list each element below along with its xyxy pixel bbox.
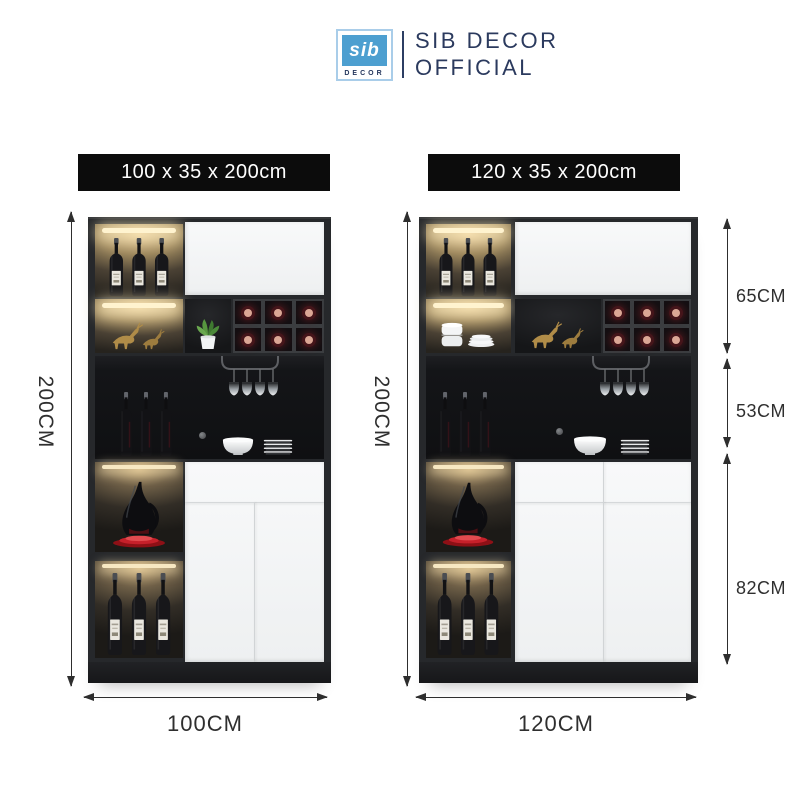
wine-cap-rack bbox=[603, 299, 691, 353]
lower-door-panel bbox=[515, 462, 691, 662]
wine-rack-cell bbox=[664, 328, 689, 351]
logo-wordmark: DECOR bbox=[338, 70, 391, 77]
section-dimension-line-65cm bbox=[727, 219, 728, 353]
wine-rack-cell bbox=[634, 301, 659, 324]
door-divider bbox=[603, 462, 604, 662]
serving-bowl bbox=[572, 436, 608, 456]
logo-monogram: sib bbox=[342, 35, 387, 66]
section-dimension-line-82cm bbox=[727, 454, 728, 664]
decanter bbox=[432, 478, 504, 550]
wine-rack-cell bbox=[296, 328, 322, 351]
wine-rack-cell bbox=[296, 301, 322, 324]
product-image: sib DECOR SIB DECOR OFFICIAL 100 x 35 x … bbox=[0, 0, 800, 800]
wine-rack-cell bbox=[265, 301, 291, 324]
lower-bottle-compartment bbox=[95, 561, 183, 658]
plant-pot bbox=[193, 317, 223, 351]
compartment-wine-display bbox=[426, 224, 511, 297]
brand-name-line1: SIB DECOR bbox=[415, 27, 559, 54]
section-dimension-label-82cm: 82CM bbox=[736, 578, 790, 599]
lower-bottle-compartment bbox=[426, 561, 511, 658]
brand-logo: sib DECOR bbox=[336, 29, 393, 81]
height-dimension-line-120 bbox=[407, 212, 408, 686]
deer-compartment bbox=[95, 299, 183, 353]
wine-rack-cell bbox=[605, 301, 630, 324]
wine-glass-rack bbox=[213, 356, 287, 410]
wine-bottles bbox=[117, 392, 175, 456]
deer-figurine bbox=[523, 320, 593, 350]
decanter-compartment bbox=[426, 462, 511, 552]
wine-cap-rack bbox=[233, 299, 324, 353]
plant-compartment bbox=[185, 299, 231, 353]
dish-stack bbox=[436, 319, 500, 351]
wine-glass-rack bbox=[584, 356, 658, 410]
wine-rack-cell bbox=[265, 328, 291, 351]
brand-name-line2: OFFICIAL bbox=[415, 54, 559, 81]
wine-rack-cell bbox=[235, 301, 261, 324]
shelf-knob bbox=[556, 428, 563, 435]
wine-bottles bbox=[104, 573, 174, 655]
shelf-knob bbox=[199, 432, 206, 439]
size-banner-120: 120 x 35 x 200cm bbox=[428, 154, 680, 191]
decanter-compartment bbox=[95, 462, 183, 552]
width-dimension-label-120: 120CM bbox=[486, 711, 626, 737]
cabinet-base bbox=[88, 662, 331, 683]
section-dimension-label-53cm: 53CM bbox=[736, 401, 790, 422]
width-dimension-line-120 bbox=[416, 697, 696, 698]
deer-figurine bbox=[103, 321, 175, 351]
door-divider bbox=[254, 502, 255, 662]
wine-rack-cell bbox=[664, 301, 689, 324]
plate-stack bbox=[261, 437, 295, 456]
section-dimension-label-65cm: 65CM bbox=[736, 286, 790, 307]
wine-rack-cell bbox=[634, 328, 659, 351]
open-shelf-section bbox=[95, 356, 324, 459]
wine-bottles bbox=[436, 238, 500, 296]
lower-door-panel bbox=[185, 462, 324, 662]
height-dimension-label-120: 200CM bbox=[369, 371, 393, 453]
brand-name: SIB DECOR OFFICIAL bbox=[415, 27, 559, 81]
size-banner-100: 100 x 35 x 200cm bbox=[78, 154, 330, 191]
deer-compartment bbox=[515, 299, 601, 353]
wine-bottles bbox=[106, 238, 172, 296]
cabinet-100cm bbox=[88, 217, 331, 683]
wine-rack-cell bbox=[235, 328, 261, 351]
top-door-panel bbox=[185, 222, 324, 295]
dish-compartment bbox=[426, 299, 511, 353]
section-dimension-line-53cm bbox=[727, 359, 728, 447]
width-dimension-label-100: 100CM bbox=[135, 711, 275, 737]
top-door-panel bbox=[515, 222, 691, 295]
plate-stack bbox=[618, 437, 652, 456]
wine-bottles bbox=[434, 573, 502, 655]
logo-divider bbox=[402, 31, 404, 78]
height-dimension-label-100: 200CM bbox=[33, 371, 57, 453]
open-shelf-section bbox=[426, 356, 691, 459]
cabinet-120cm bbox=[419, 217, 698, 683]
decanter bbox=[102, 478, 176, 550]
wine-bottles bbox=[436, 392, 494, 456]
wine-rack-cell bbox=[605, 328, 630, 351]
compartment-wine-display bbox=[95, 224, 183, 297]
height-dimension-line-100 bbox=[71, 212, 72, 686]
cabinet-base bbox=[419, 662, 698, 683]
serving-bowl bbox=[221, 437, 255, 456]
width-dimension-line-100 bbox=[84, 697, 327, 698]
